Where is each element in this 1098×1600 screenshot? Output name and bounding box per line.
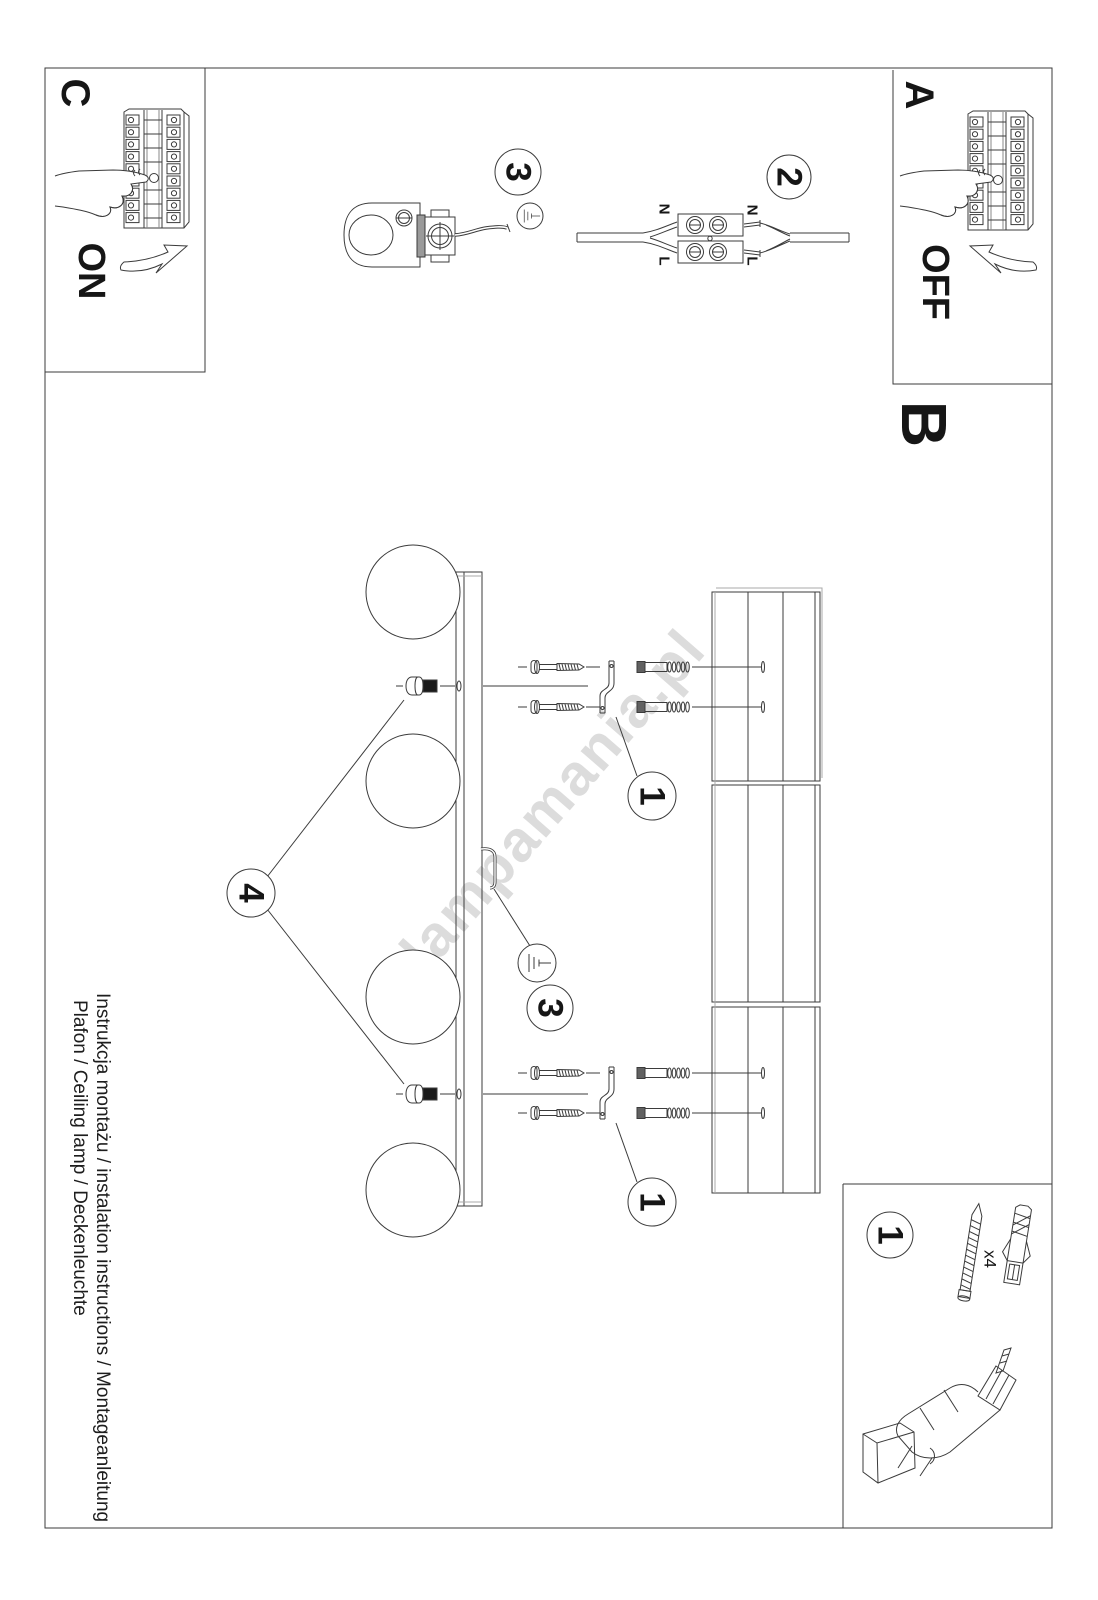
step-number-1: 1: [635, 786, 670, 805]
drill-icon: [863, 1348, 1016, 1483]
step-number-4: 4: [234, 883, 269, 902]
section-label-a: A: [899, 81, 939, 110]
line-art: [0, 0, 1098, 1600]
switch-state-off: OFF: [916, 244, 954, 320]
wire-label-live: L: [657, 256, 672, 265]
wall-plug-icon: [998, 1203, 1038, 1285]
step-number-3: 3: [501, 162, 536, 181]
screw-quantity-label: x4: [982, 1250, 999, 1268]
mounting-hardware-rows: [518, 661, 765, 1227]
lamp-globe: [366, 734, 460, 828]
step-number-1: 1: [873, 1225, 908, 1244]
wire-label-neutral: N: [657, 204, 672, 215]
step-number-3: 3: [533, 998, 568, 1017]
arrow-on-icon: [120, 245, 187, 273]
lamp-globe: [366, 950, 460, 1044]
ceiling-rails-drawing: [712, 588, 822, 1193]
instruction-sheet: lampamania.pl: [0, 0, 1098, 1600]
footer-title-line2: Plafon / Ceiling lamp / Deckenleuchte: [68, 1000, 90, 1316]
footer-title-line1: Instrukcja montażu / instalation instruc…: [91, 993, 113, 1522]
section-label-b: B: [892, 401, 956, 447]
wire-label-neutral: N: [745, 205, 760, 216]
lamp-globe: [366, 1143, 460, 1237]
step-number-1: 1: [635, 1192, 670, 1211]
arrow-off-icon: [970, 245, 1037, 273]
ceiling-lamp-drawing: [227, 545, 588, 1237]
lamp-globe: [366, 545, 460, 639]
wire-label-live: L: [745, 256, 760, 265]
step-number-2: 2: [772, 167, 807, 186]
switch-state-on: ON: [72, 243, 110, 300]
page-border: [45, 68, 1052, 1528]
section-label-c: C: [55, 79, 95, 108]
